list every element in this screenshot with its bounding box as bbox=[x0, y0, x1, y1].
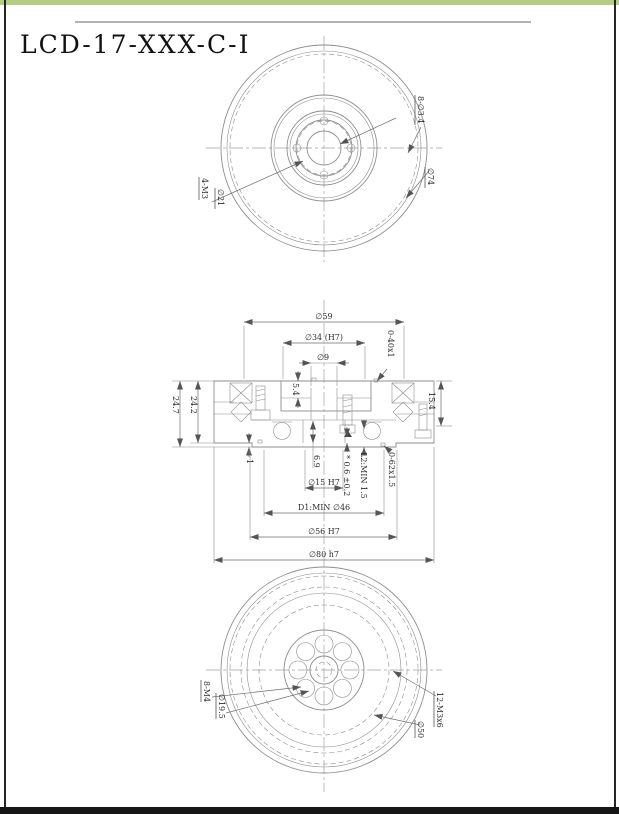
dim-24-2: 24.2 bbox=[189, 396, 198, 414]
dim-1: 1 bbox=[245, 459, 254, 464]
label-back-d195: ∅19.5 bbox=[217, 694, 226, 719]
label-back-d50: ∅50 bbox=[416, 721, 425, 738]
dim-d56: ∅56 H7 bbox=[308, 527, 340, 536]
dim-d80: ∅80 h7 bbox=[309, 550, 339, 559]
catalog-page: LCD-17-XXX-C-I bbox=[0, 0, 619, 814]
label-oring-top: 0-40x1 bbox=[386, 330, 395, 358]
front-view-generated-geometry bbox=[0, 0, 355, 179]
back-view-generated-geometry bbox=[0, 0, 359, 705]
dim-6-9: 6.9 bbox=[312, 455, 321, 468]
dim-5-4: 5.4 bbox=[291, 383, 300, 396]
dim-l2-min: L2:MIN 1.5 bbox=[359, 452, 368, 499]
dim-d59: ∅59 bbox=[315, 312, 332, 321]
dim-d34: ∅34 (H7) bbox=[305, 333, 343, 342]
dim-15-4: 15.4 bbox=[427, 392, 436, 410]
dim-d15: ∅15 H7 bbox=[308, 478, 340, 487]
label-oring-bottom: 0-62x1.5 bbox=[387, 452, 396, 487]
front-view-leaders bbox=[212, 118, 429, 202]
label-back-m4: 8-M4 bbox=[202, 681, 211, 702]
dim-tolerance: * 0.6 ±0.2 bbox=[342, 455, 351, 496]
dim-24-7: 24.7 bbox=[171, 396, 180, 414]
label-front-screw-circle: ∅21 bbox=[216, 189, 225, 206]
label-front-holes: 8-∅3.4 bbox=[416, 96, 425, 123]
front-view: 8-∅3.4 ∅74 4-M3 ∅21 bbox=[0, 0, 442, 251]
label-front-bolt-circle: ∅74 bbox=[426, 168, 435, 185]
label-back-m3x6: 12-M3x6 bbox=[435, 692, 444, 728]
label-front-screws: 4-M3 bbox=[200, 178, 209, 199]
section-view: ∅59 ∅34 (H7) ∅9 5.4 0-40x1 15 bbox=[171, 312, 452, 563]
section-dimensions: ∅59 ∅34 (H7) ∅9 5.4 0-40x1 15 bbox=[171, 312, 452, 563]
dim-d9: ∅9 bbox=[317, 353, 329, 362]
technical-drawing: 8-∅3.4 ∅74 4-M3 ∅21 bbox=[0, 0, 619, 814]
back-view: 8-M4 ∅19.5 12-M3x6 ∅50 bbox=[0, 0, 444, 773]
dim-d46-min: D1:MIN ∅46 bbox=[298, 503, 350, 512]
